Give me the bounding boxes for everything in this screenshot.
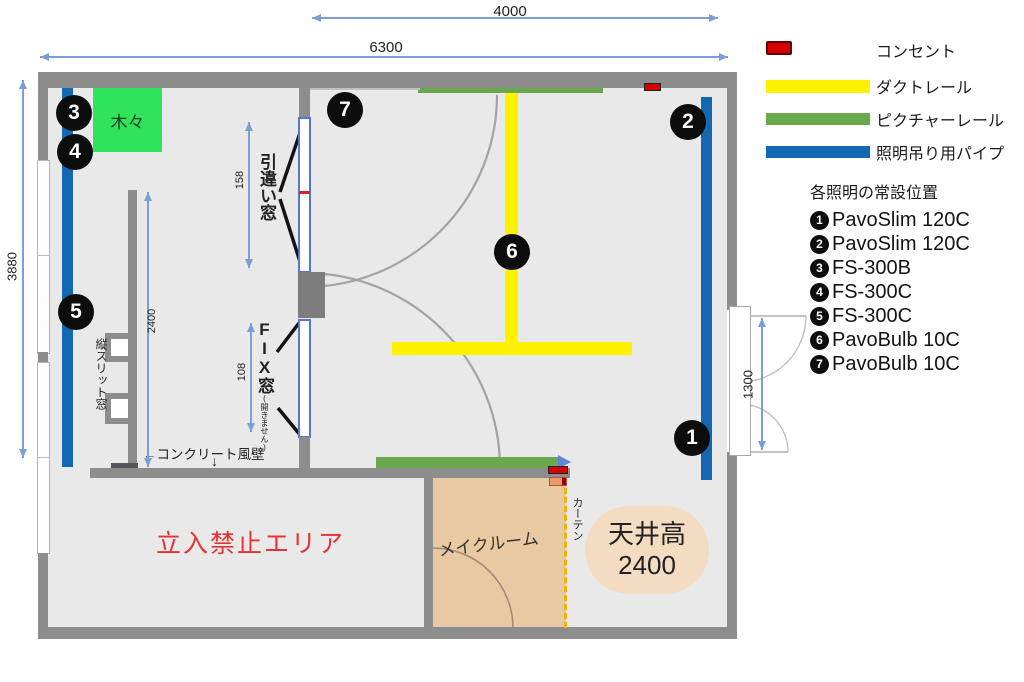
duct-rail-horizontal [392, 342, 632, 355]
light-marker-4: 4 [57, 134, 93, 170]
center-wall-stub-top [299, 85, 310, 118]
light-list-item-4: 4 FS-300C [810, 280, 970, 304]
light-4-label: FS-300C [832, 281, 912, 304]
dim-label-1300: 1300 [741, 365, 756, 405]
outlet-icon-makeup [548, 466, 568, 474]
dim-label-158: 158 [234, 160, 246, 200]
dim-label-108: 108 [236, 352, 248, 392]
center-wall-stub-bottom [299, 437, 310, 470]
legend-lighting-pipe-swatch [766, 146, 870, 158]
wall-top-inner-line [310, 88, 420, 90]
left-window-frame-line-2 [37, 457, 50, 458]
curtain-line [564, 488, 567, 628]
dim-label-6300: 6300 [346, 39, 426, 56]
ceiling-height-value: 2400 [618, 550, 676, 581]
sliding-window-mark [299, 191, 310, 194]
light-list-item-5: 5 FS-300C [810, 304, 970, 328]
dim-line-6300 [40, 56, 728, 58]
light-3-label: FS-300B [832, 257, 911, 280]
picture-rail-bottom [376, 457, 558, 468]
legend-lighting-pipe-label: 照明吊り用パイプ [876, 140, 1004, 164]
duct-rail-vertical [505, 93, 518, 352]
dim-label-2400: 2400 [146, 301, 158, 341]
light-marker-3: 3 [56, 95, 92, 131]
sliding-window-label: 引違い窓 [254, 153, 279, 221]
outlet-icon-top [644, 83, 661, 91]
legend-heading: 各照明の常設位置 [810, 179, 938, 203]
outlet-icon-makeup-2 [549, 477, 567, 486]
light-6-badge: 6 [810, 331, 829, 350]
wall-left-upper [38, 72, 48, 162]
wall-top [38, 72, 737, 88]
light-3-badge: 3 [810, 259, 829, 278]
light-5-badge: 5 [810, 307, 829, 326]
light-list-item-1: 1 PavoSlim 120C [810, 208, 970, 232]
light-2-badge: 2 [810, 235, 829, 254]
trees-area: 木々 [93, 88, 162, 152]
light-list-item-6: 6 PavoBulb 10C [810, 328, 970, 352]
light-list-item-2: 2 PavoSlim 120C [810, 232, 970, 256]
left-window-frame-line-1 [37, 255, 50, 256]
light-marker-1: 1 [674, 420, 710, 456]
dim-line-108 [250, 323, 252, 432]
wall-bottom [38, 627, 737, 639]
wall-right-upper [727, 72, 737, 310]
light-1-label: PavoSlim 120C [832, 209, 970, 232]
legend-duct-rail-swatch [766, 80, 870, 93]
dim-line-158 [248, 122, 250, 268]
left-window-upper [37, 160, 50, 354]
light-1-badge: 1 [810, 211, 829, 230]
light-4-badge: 4 [810, 283, 829, 302]
legend-picture-rail-label: ピクチャーレール [876, 107, 1004, 131]
fix-window-name: FIX窓 [255, 320, 274, 394]
legend-duct-rail-label: ダクトレール [876, 74, 972, 98]
legend-outlet-icon [766, 41, 792, 55]
light-marker-5: 5 [58, 294, 94, 330]
light-7-badge: 7 [810, 355, 829, 374]
light-list: 1 PavoSlim 120C 2 PavoSlim 120C 3 FS-300… [810, 208, 970, 376]
wall-right-lower [727, 452, 737, 639]
left-window-lower [37, 362, 50, 554]
dim-label-3880: 3880 [5, 247, 20, 287]
ceiling-height-title: 天井高 [608, 519, 686, 550]
floor-plan-canvas: 木々 [0, 0, 1024, 682]
dim-line-1300 [761, 318, 763, 450]
dim-line-3880 [22, 80, 24, 458]
concrete-wall-down-arrow: ↓ [211, 453, 218, 469]
legend-outlet-label: コンセント [876, 38, 956, 62]
wall-left-lower [38, 553, 48, 639]
sliding-window [298, 117, 311, 273]
center-pillar [298, 272, 325, 318]
concrete-wall-label: ←コンクリート風壁 [143, 443, 265, 463]
ceiling-height-badge: 天井高 2400 [585, 506, 709, 594]
light-list-item-7: 7 PavoBulb 10C [810, 352, 970, 376]
wall-makeup-divider [424, 477, 433, 628]
light-marker-2: 2 [670, 104, 706, 140]
light-5-label: FS-300C [832, 305, 912, 328]
curtain-label: カーテン [569, 497, 585, 541]
trees-label: 木々 [111, 108, 145, 133]
no-entry-label: 立入禁止エリア [156, 524, 345, 560]
light-6-label: PavoBulb 10C [832, 329, 960, 352]
fix-window-label: FIX窓(開きません) [252, 320, 277, 452]
legend-picture-rail-swatch [766, 113, 870, 125]
light-marker-7: 7 [327, 92, 363, 128]
fix-window [298, 319, 311, 438]
light-7-label: PavoBulb 10C [832, 353, 960, 376]
light-2-label: PavoSlim 120C [832, 233, 970, 256]
concrete-wall [128, 190, 137, 470]
dim-label-4000: 4000 [470, 3, 550, 20]
slit-window-label: 縦スリット窓 [93, 338, 110, 410]
light-marker-6: 6 [494, 234, 530, 270]
wall-horizontal [90, 468, 570, 478]
light-list-item-3: 3 FS-300B [810, 256, 970, 280]
